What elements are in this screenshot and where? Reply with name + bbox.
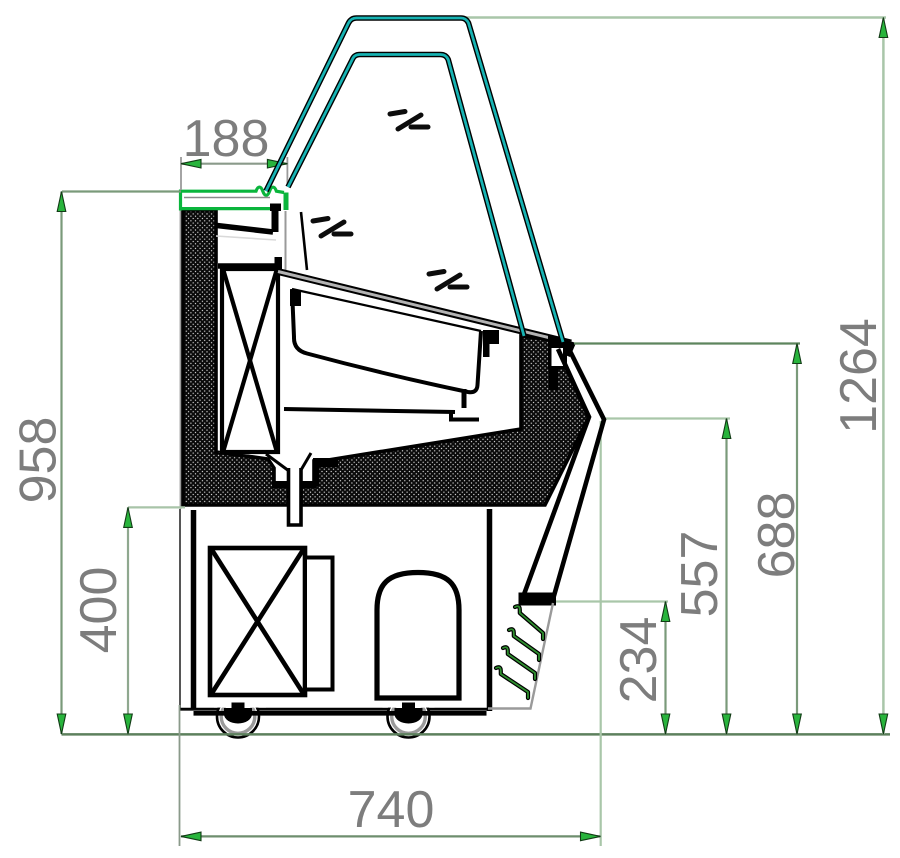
svg-text:188: 188 — [183, 110, 270, 168]
svg-text:740: 740 — [348, 781, 435, 839]
svg-text:1264: 1264 — [830, 318, 888, 434]
svg-text:958: 958 — [10, 417, 68, 504]
svg-text:400: 400 — [70, 567, 128, 654]
svg-text:557: 557 — [671, 531, 729, 618]
svg-text:688: 688 — [748, 492, 806, 579]
svg-text:234: 234 — [610, 617, 668, 704]
